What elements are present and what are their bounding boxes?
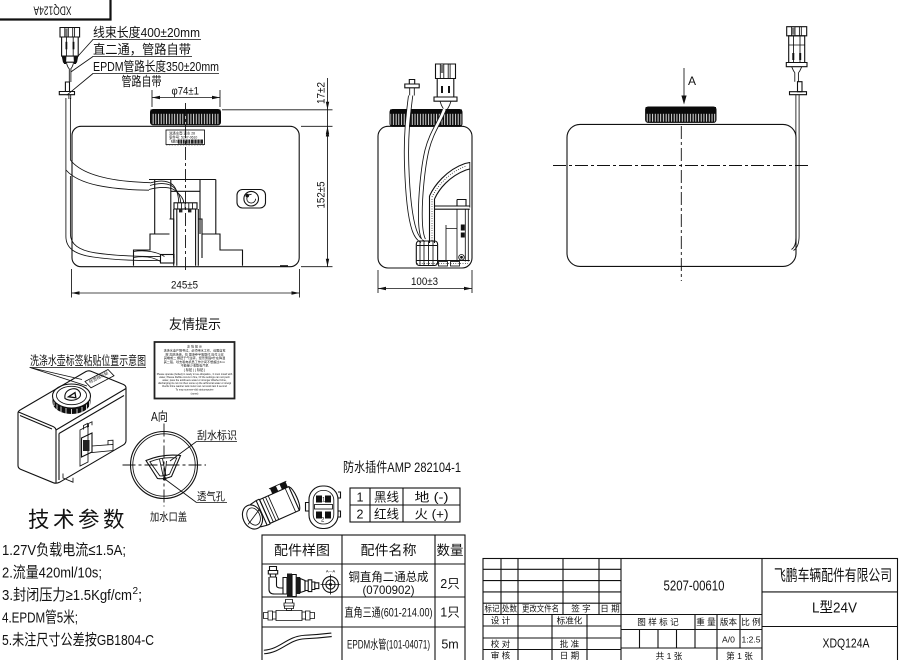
svg-text:铜直角二通总成: 铜直角二通总成	[349, 569, 429, 584]
svg-text:图 样 标 记: 图 样 标 记	[637, 616, 679, 627]
svg-text:洗涤水壶标签粘贴位置示意图: 洗涤水壶标签粘贴位置示意图	[30, 353, 146, 368]
svg-text:比 例: 比 例	[741, 616, 761, 627]
svg-text:标记: 标记	[485, 603, 500, 614]
svg-text:配件名称: 配件名称	[361, 543, 417, 558]
svg-text:刮水标识: 刮水标识	[197, 428, 237, 442]
svg-text:;: ;	[138, 587, 142, 604]
svg-text:第 1 张: 第 1 张	[726, 650, 753, 660]
svg-text:1只: 1只	[440, 606, 459, 620]
svg-text:5.未注尺寸公差按GB1804-C: 5.未注尺寸公差按GB1804-C	[2, 632, 154, 649]
svg-text:配件样图: 配件样图	[274, 543, 330, 558]
svg-text:2: 2	[357, 508, 364, 522]
svg-text:共 1 张: 共 1 张	[656, 651, 683, 660]
svg-text:标准化: 标准化	[557, 615, 583, 626]
svg-text:1:2.5: 1:2.5	[741, 635, 760, 645]
svg-text:重 量: 重 量	[696, 616, 716, 627]
svg-text:线束长度400±20mm: 线束长度400±20mm	[93, 25, 200, 40]
svg-text:红线: 红线	[374, 507, 399, 522]
svg-text:1: 1	[357, 491, 364, 505]
svg-text:加水口盖: 加水口盖	[150, 510, 187, 524]
svg-text:100±3: 100±3	[411, 276, 438, 288]
svg-text:数量: 数量	[437, 543, 464, 558]
svg-text:日 期: 日 期	[560, 651, 580, 660]
svg-text:4.EPDM管5米;: 4.EPDM管5米;	[2, 610, 78, 627]
svg-text:A—A: A—A	[326, 569, 336, 574]
svg-text:EPDM水管(101-04071): EPDM水管(101-04071)	[347, 637, 430, 652]
svg-text:To may summer-slid stoicompute: To may summer-slid stoicomputee	[176, 388, 215, 391]
svg-text:签 字: 签 字	[571, 603, 591, 614]
svg-text:2: 2	[321, 518, 325, 524]
svg-text:17±2: 17±2	[316, 82, 328, 104]
svg-text:火 (+): 火 (+)	[415, 508, 449, 522]
svg-text:EPDM管路长度350±20mm: EPDM管路长度350±20mm	[93, 59, 219, 74]
svg-text:黑线: 黑线	[374, 491, 399, 505]
svg-text:A/0: A/0	[722, 635, 735, 645]
svg-text:管路自带: 管路自带	[122, 74, 162, 89]
svg-text:2.流量420ml/10s;: 2.流量420ml/10s;	[2, 565, 102, 582]
svg-text:设 计: 设 计	[491, 615, 511, 626]
svg-text:批 准: 批 准	[560, 638, 580, 649]
svg-text:飞鹏车辆配件有限公司: 飞鹏车辆配件有限公司	[774, 567, 892, 585]
svg-text:防水插件AMP 282104-1: 防水插件AMP 282104-1	[343, 460, 461, 475]
svg-text:直二通，管路自带: 直二通，管路自带	[93, 42, 191, 57]
svg-text:友情提示: 友情提示	[169, 317, 221, 332]
svg-text:XDQ124A: XDQ124A	[823, 636, 870, 651]
svg-text:245±5: 245±5	[171, 280, 198, 292]
svg-text:A向: A向	[151, 409, 168, 424]
svg-text:( 标贴 ) ( 标贴 ): ( 标贴 ) ( 标贴 )	[184, 367, 205, 372]
svg-text:技术参数: 技术参数	[28, 508, 128, 532]
svg-text:3.封闭压力≥1.5Kgf/cm: 3.封闭压力≥1.5Kgf/cm	[2, 587, 132, 604]
svg-text:日 期: 日 期	[600, 604, 620, 614]
svg-text:版本: 版本	[720, 616, 738, 627]
svg-text:处数: 处数	[502, 603, 517, 614]
svg-text:(some): (some)	[191, 393, 199, 396]
svg-text:审 核: 审 核	[491, 650, 511, 660]
svg-text:更改文件名: 更改文件名	[522, 603, 559, 614]
svg-text:5207-00610: 5207-00610	[664, 579, 725, 595]
svg-text:152±5: 152±5	[316, 182, 328, 209]
svg-text:透气孔: 透气孔	[197, 489, 225, 503]
svg-text:直角三通(601-214.00): 直角三通(601-214.00)	[345, 606, 433, 620]
svg-text:L型24V: L型24V	[812, 600, 857, 617]
svg-text:2只: 2只	[440, 577, 459, 591]
svg-text:(0700902): (0700902)	[363, 583, 415, 597]
svg-text:XDQ124A: XDQ124A	[33, 3, 71, 15]
svg-text:1.27V负载电流≤1.5A;: 1.27V负载电流≤1.5A;	[2, 542, 126, 559]
svg-text:校 对: 校 对	[491, 638, 511, 649]
svg-text:A: A	[688, 74, 696, 88]
svg-text:5m: 5m	[441, 638, 458, 652]
svg-text:φ74±1: φ74±1	[172, 86, 200, 98]
svg-text:地 (-): 地 (-)	[415, 491, 449, 505]
